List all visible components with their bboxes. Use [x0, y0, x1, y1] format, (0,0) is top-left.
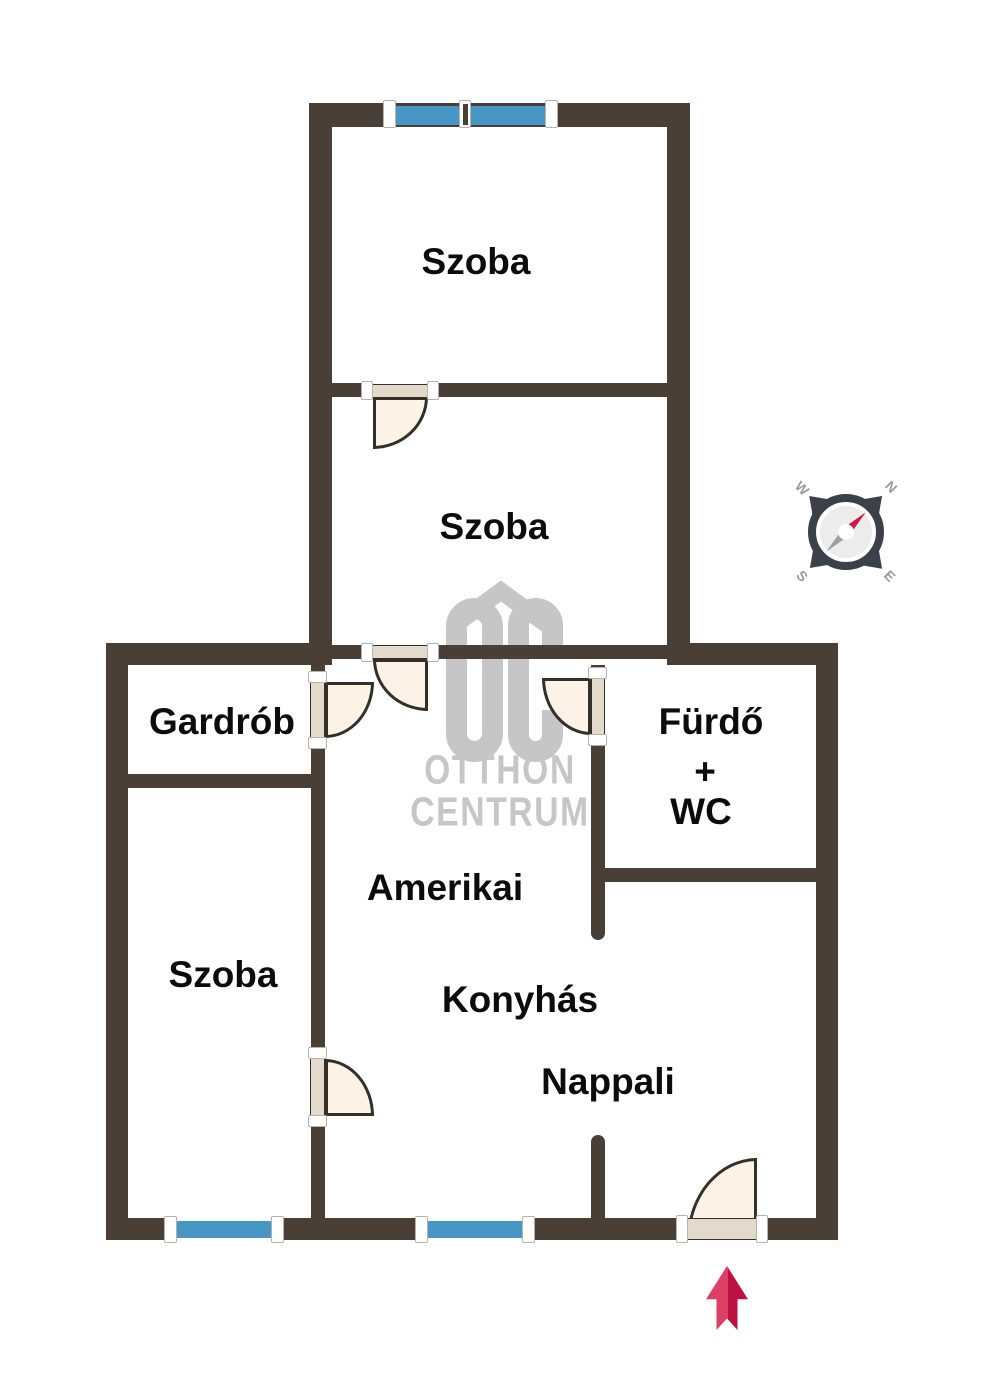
door-swing-szoba-left [325, 1059, 374, 1116]
door-cap [676, 1215, 688, 1243]
room-label-bathroom-line2: + [694, 751, 716, 793]
door-swing-szoba2-living [373, 659, 428, 711]
window-szoba-left-cap-l [164, 1216, 177, 1243]
compass-label-n: N [880, 475, 903, 498]
door-leaf-szoba1-szoba2 [372, 384, 428, 398]
wall-bathroom-bottom [591, 868, 816, 882]
door-cap [756, 1215, 768, 1243]
window-living-cap-r [522, 1216, 535, 1243]
window-szoba-left-cap-r [271, 1216, 284, 1243]
window-szoba-left [176, 1221, 273, 1238]
window-living [427, 1221, 524, 1238]
door-swing-szoba1-szoba2 [373, 397, 428, 449]
room-label-living-line3: Nappali [541, 1061, 675, 1103]
door-leaf-szoba2-living [372, 645, 428, 659]
room-label-bathroom-line3: WC [670, 791, 732, 833]
room-label-szoba-top: Szoba [422, 241, 531, 283]
door-cap [308, 1115, 327, 1127]
window-top-pane-right [470, 106, 546, 125]
room-label-living-line2: Konyhás [442, 979, 598, 1021]
wall-bathroom-left-bottom [591, 735, 605, 882]
wall-lower-right [816, 643, 838, 1240]
compass-label-w: W [791, 477, 814, 500]
window-top-pane-left [395, 106, 462, 125]
wall-lower-left [106, 643, 128, 1240]
door-cap [308, 1047, 327, 1059]
door-cap [588, 667, 607, 679]
wall-stub-upper [591, 880, 605, 940]
room-label-szoba-middle: Szoba [440, 506, 549, 548]
door-cap [427, 643, 439, 662]
room-label-gardrob: Gardrób [149, 701, 295, 743]
window-top-cap-right [545, 100, 558, 128]
wall-bottom-1 [106, 1218, 167, 1240]
door-cap [308, 737, 327, 749]
entrance-arrow-icon [706, 1266, 748, 1330]
door-cap [361, 643, 373, 662]
door-leaf-szoba-left [310, 1058, 325, 1116]
door-cap [308, 671, 327, 683]
wall-bottom-2 [282, 1218, 418, 1240]
wall-gardrob-bottom [128, 774, 325, 788]
door-cap [427, 381, 439, 400]
wall-lower-top-mid-right [428, 645, 667, 659]
window-top-mullion-core [463, 104, 468, 125]
floor-plan: OTTHON CENTRUM [0, 0, 1000, 1400]
door-leaf-entrance [687, 1218, 757, 1240]
room-label-living-line1: Amerikai [367, 867, 523, 909]
wall-stub-lower [591, 1135, 605, 1218]
window-living-cap-l [415, 1216, 428, 1243]
door-leaf-gardrob [310, 682, 325, 738]
wall-lower-top-left [106, 643, 332, 665]
wall-column-bottom [311, 1116, 325, 1218]
door-swing-gardrob [325, 682, 374, 738]
wall-szoba-divider-right [428, 383, 667, 397]
compass-rose: N E S W [770, 456, 923, 609]
compass-label-e: E [879, 565, 902, 588]
window-top-cap-left [383, 100, 396, 128]
wall-bottom-4 [757, 1218, 838, 1240]
wall-bottom-3 [533, 1218, 687, 1240]
door-cap [361, 381, 373, 400]
wall-upper-left [309, 103, 332, 665]
room-label-bathroom-line1: Fürdő [659, 701, 764, 743]
wall-lower-top-right [667, 643, 838, 665]
wall-upper-right [667, 103, 690, 659]
door-cap [588, 734, 607, 746]
logo-letter-o [446, 598, 503, 762]
room-label-szoba-left: Szoba [169, 954, 278, 996]
door-leaf-bathroom [591, 678, 605, 735]
